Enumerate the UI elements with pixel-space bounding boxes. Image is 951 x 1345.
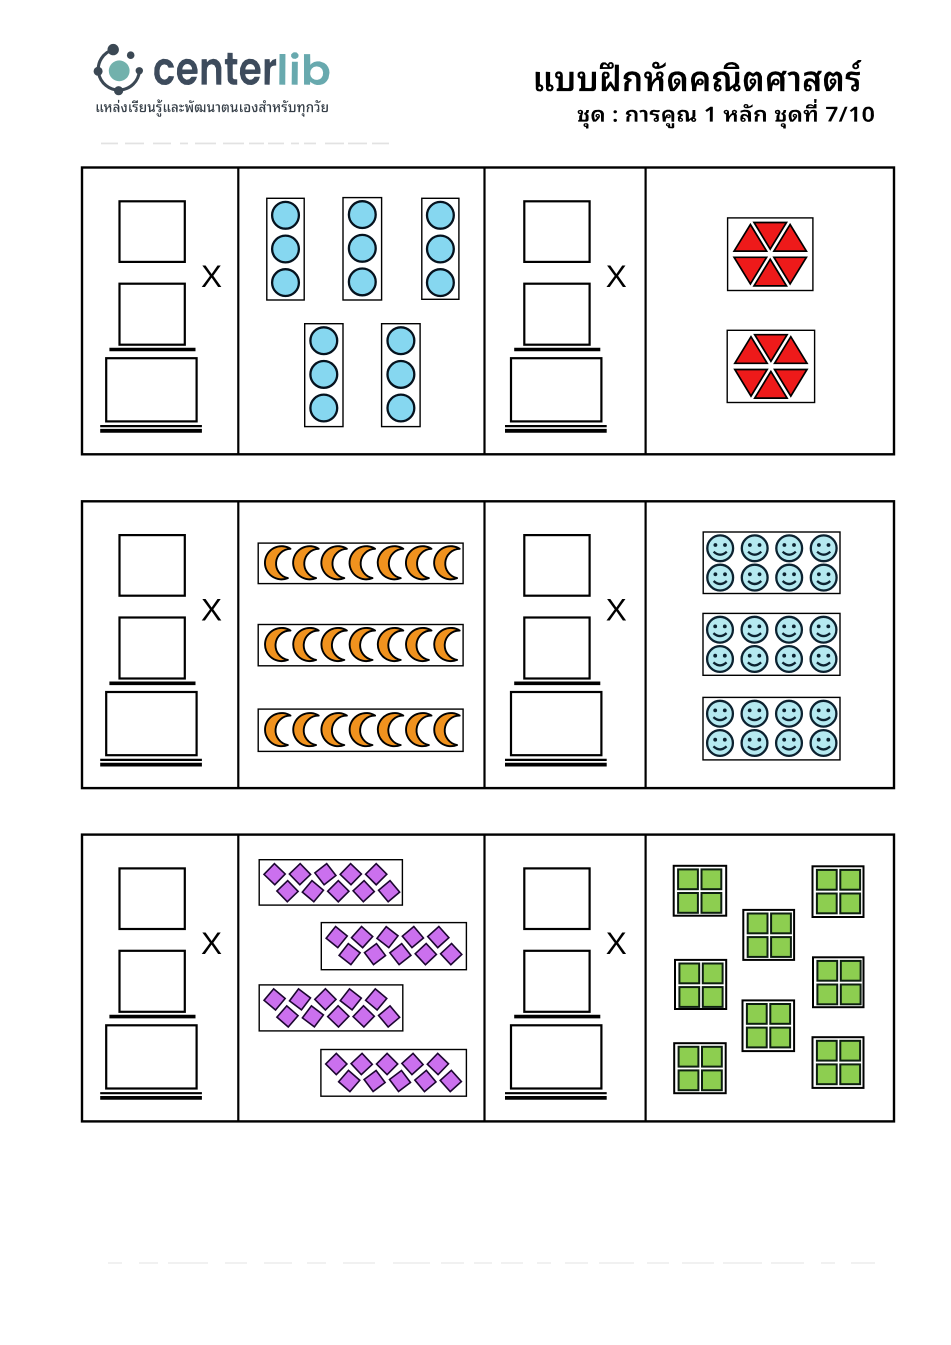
svg-text:X: X: [201, 258, 222, 294]
svg-text:X: X: [201, 925, 222, 961]
svg-text:X: X: [606, 925, 627, 961]
svg-text:X: X: [606, 258, 627, 294]
svg-text:X: X: [201, 592, 222, 628]
svg-text:X: X: [606, 592, 627, 628]
